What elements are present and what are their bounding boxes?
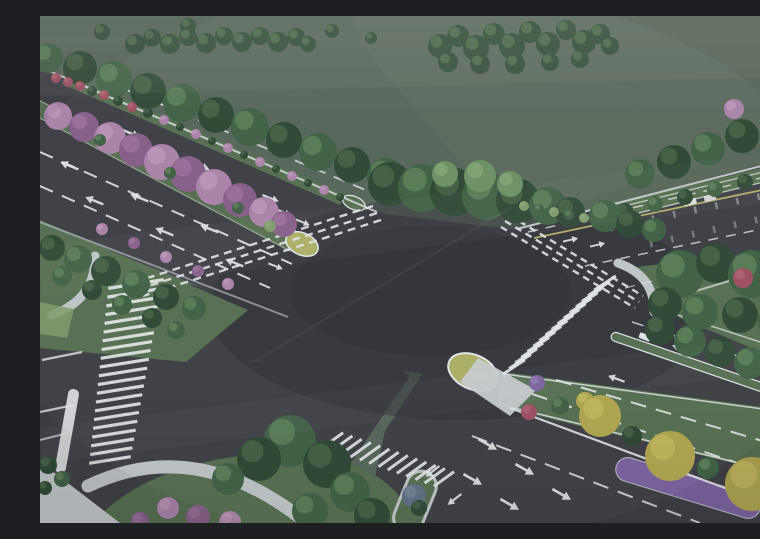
tree: [579, 395, 621, 437]
tree: [198, 97, 234, 133]
tree: [334, 147, 370, 183]
tree: [182, 296, 206, 320]
tree: [287, 171, 297, 181]
tree: [94, 134, 106, 146]
tree: [642, 218, 666, 242]
tree: [142, 308, 162, 328]
tree: [724, 99, 744, 119]
tree: [231, 108, 269, 146]
intersection-rendering-photo: Aerial rendering of a planned road inter…: [40, 16, 760, 523]
tree: [159, 115, 169, 125]
tree: [112, 295, 132, 315]
tree: [240, 151, 248, 159]
tree: [319, 185, 329, 195]
tree: [143, 108, 153, 118]
tree: [191, 129, 201, 139]
tree: [208, 137, 216, 145]
tree: [682, 294, 718, 330]
tree: [164, 167, 176, 179]
tree: [212, 463, 244, 495]
tree: [725, 119, 759, 153]
tree: [167, 321, 185, 339]
tree: [645, 315, 675, 345]
tree: [645, 431, 695, 481]
tree: [411, 500, 427, 516]
tree: [304, 179, 312, 187]
tree: [255, 157, 265, 167]
tree: [153, 284, 179, 310]
tree: [232, 202, 244, 214]
tree: [722, 297, 758, 333]
tree: [113, 96, 123, 106]
tree: [176, 123, 184, 131]
tree: [521, 404, 537, 420]
tree: [222, 278, 234, 290]
tree: [266, 122, 302, 158]
tree: [237, 437, 281, 481]
tree: [464, 160, 496, 192]
tree: [127, 102, 137, 112]
tree: [432, 161, 458, 187]
tree: [272, 165, 280, 173]
tree: [622, 426, 642, 446]
tree: [336, 193, 344, 201]
tree: [733, 268, 753, 288]
tree: [96, 223, 108, 235]
intersection-rendering-canvas: [40, 16, 760, 523]
tree: [223, 143, 233, 153]
tree: [299, 133, 337, 171]
